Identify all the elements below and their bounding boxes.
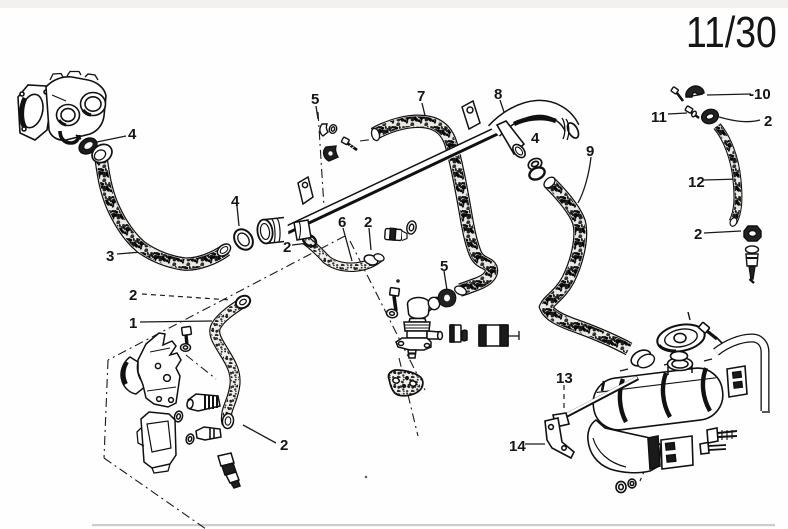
svg-text:14: 14: [509, 438, 526, 455]
svg-text:4: 4: [231, 193, 240, 210]
svg-text:2: 2: [694, 226, 702, 243]
svg-text:5: 5: [440, 258, 448, 275]
svg-text:1: 1: [129, 315, 137, 332]
svg-text:-10: -10: [749, 86, 771, 103]
svg-text:3: 3: [106, 248, 114, 265]
svg-text:2: 2: [280, 437, 288, 454]
svg-text:4: 4: [531, 130, 540, 147]
svg-text:11/30: 11/30: [686, 7, 777, 57]
svg-text:4: 4: [128, 126, 137, 143]
svg-text:8: 8: [494, 86, 502, 103]
svg-text:5: 5: [311, 91, 319, 108]
svg-text:2: 2: [764, 113, 772, 130]
svg-text:13: 13: [556, 370, 573, 387]
svg-text:12: 12: [688, 174, 705, 191]
svg-text:2: 2: [129, 287, 137, 304]
svg-text:6: 6: [338, 214, 346, 231]
svg-text:7: 7: [417, 88, 425, 105]
svg-text:11: 11: [651, 109, 667, 126]
svg-text:2: 2: [364, 214, 372, 231]
svg-text:9: 9: [586, 143, 594, 160]
